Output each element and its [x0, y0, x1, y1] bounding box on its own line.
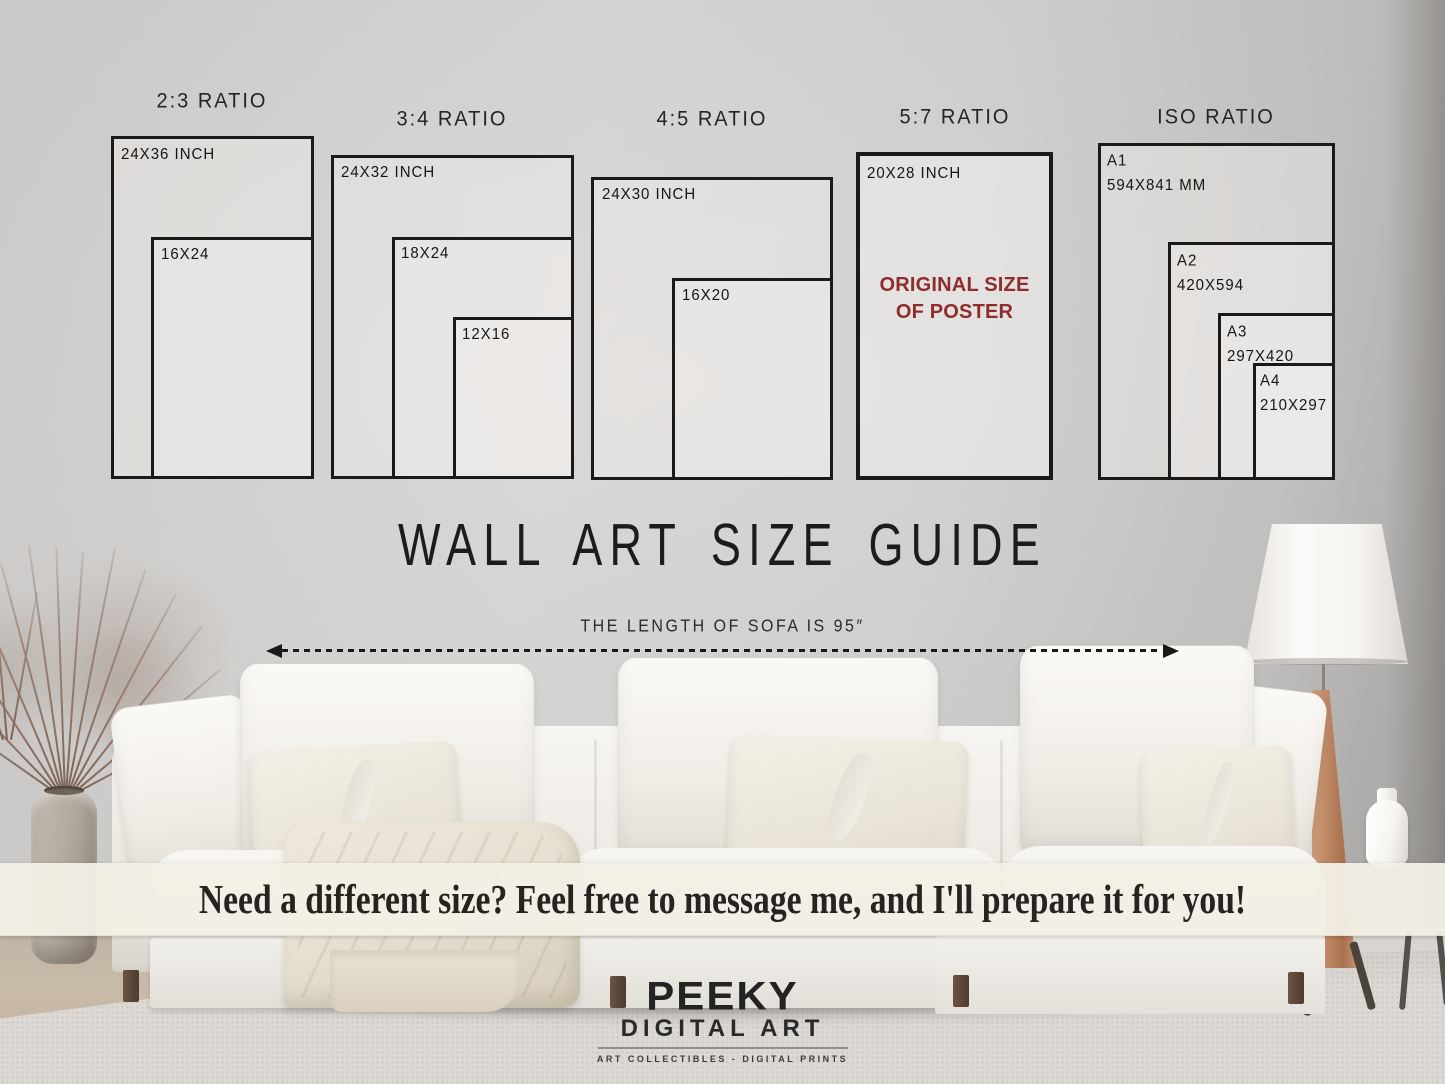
brand-name: PEEKY — [0, 977, 1445, 1015]
ratio-section-title: 5:7 RATIO — [845, 105, 1065, 129]
iso-size-label: A1 594X841 MM — [1107, 149, 1206, 197]
size-box-label: 18X24 — [401, 245, 449, 263]
brand-logo: PEEKY DIGITAL ART ART COLLECTIBLES - DIG… — [0, 976, 1445, 1064]
size-box-label: 24X36 INCH — [121, 146, 215, 164]
iso-size-label: A3 297X420 — [1227, 320, 1294, 368]
iso-size-label: A2 420X594 — [1177, 249, 1244, 297]
plant-vase-mouth — [44, 786, 84, 795]
size-guide-heading: WALL ART SIZE GUIDE — [72, 511, 1373, 579]
size-box-label: 24X32 INCH — [341, 164, 435, 182]
size-box-16x20 — [672, 278, 833, 480]
decor-vase — [1366, 800, 1408, 868]
ratio-section-title: 2:3 RATIO — [102, 89, 322, 113]
iso-size-label: A4 210X297 — [1260, 369, 1327, 417]
arrow-right-icon — [1163, 644, 1179, 658]
size-box-16x24 — [151, 237, 314, 479]
size-box-label: 16X20 — [682, 287, 730, 305]
ratio-section-title: 3:4 RATIO — [342, 107, 562, 131]
original-size-callout: ORIGINAL SIZE OF POSTER — [861, 272, 1048, 326]
size-box-label: 12X16 — [462, 326, 510, 344]
ratio-section-title: ISO RATIO — [1106, 105, 1326, 129]
lamp-stem — [1322, 664, 1325, 692]
lamp-shade-rim — [1244, 658, 1408, 665]
sofa-length-note: THE LENGTH OF SOFA IS 95″ — [0, 617, 1445, 636]
brand-subtitle: DIGITAL ART — [0, 1016, 1445, 1042]
ratio-section-title: 4:5 RATIO — [602, 107, 822, 131]
info-banner: Need a different size? Feel free to mess… — [0, 863, 1445, 936]
length-arrow — [282, 649, 1160, 652]
size-box-label: 16X24 — [161, 246, 209, 264]
logo-divider — [598, 1047, 848, 1049]
brand-tagline: ART COLLECTIBLES - DIGITAL PRINTS — [0, 1054, 1445, 1064]
banner-message: Need a different size? Feel free to mess… — [130, 863, 1315, 936]
arrow-left-icon — [266, 644, 282, 658]
wall-art-size-guide-image: 2:3 RATIO 3:4 RATIO 4:5 RATIO 5:7 RATIO … — [0, 0, 1445, 1084]
size-box-label: 24X30 INCH — [602, 186, 696, 204]
size-box-label: 20X28 INCH — [867, 165, 961, 183]
